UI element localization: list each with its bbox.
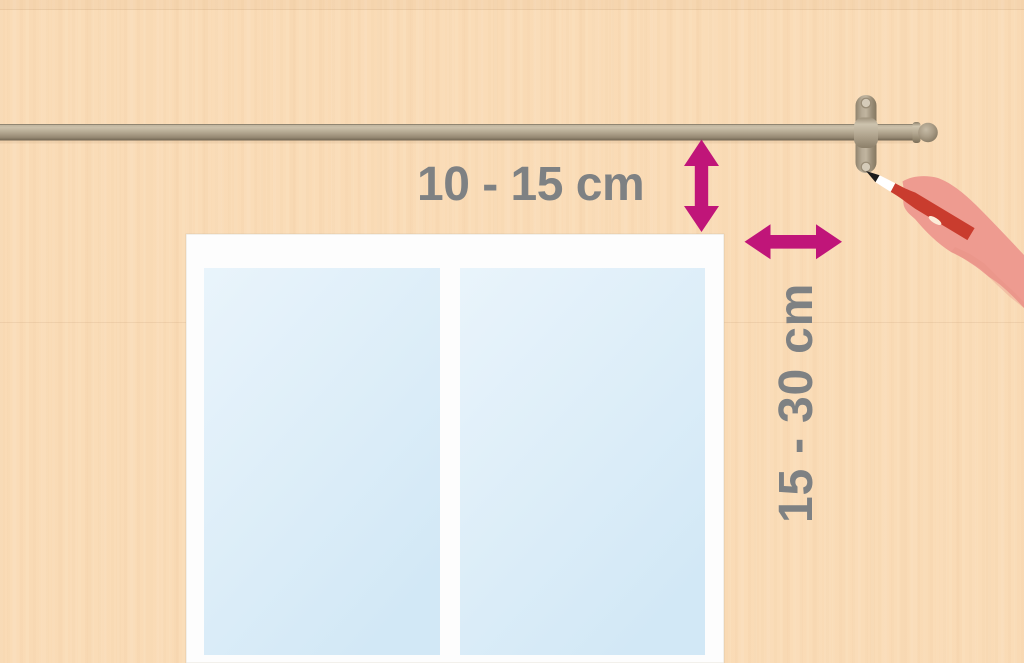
- svg-text:10 - 15 cm: 10 - 15 cm: [417, 158, 644, 211]
- svg-text:15 - 30 cm: 15 - 30 cm: [770, 283, 823, 523]
